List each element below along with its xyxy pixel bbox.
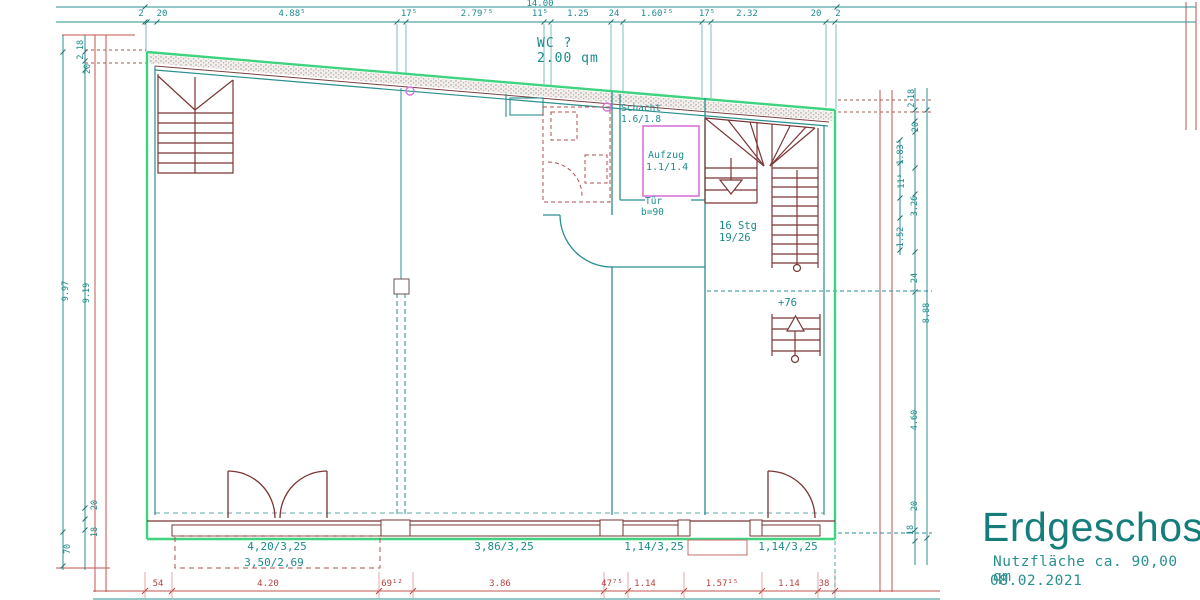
stair-down-arrow-icon [720,180,742,194]
room-label-114a: 1,14/3,25 [624,541,684,552]
dim-top-5: 11⁵ [532,10,548,19]
wc-door-arc [560,215,612,267]
plan-date: 08.02.2021 [990,574,1082,589]
aufzug-size-label: 1.1/1.4 [646,163,688,173]
dim-right-1: 2 [908,102,917,107]
dim-top-7: 24 [609,10,620,19]
dim-bottom-3: 3.86 [489,580,511,589]
dim-bottom-0: 54 [153,580,164,589]
doors [228,471,815,518]
schacht-size-label: 1.6/1.8 [621,115,661,125]
dim-right-3: 1.83⁵ [897,139,906,165]
dim-top-1: 20 [157,10,168,19]
column-marker [394,279,409,294]
dim-left-0: 18 [77,40,86,50]
wc-area-label: 2.00 qm [537,52,599,65]
dashed-reference-lines [85,50,932,598]
dim-right-11: 18 [907,525,916,535]
stair-rise-label: 19/26 [719,233,751,244]
dim-bottom-5: 1.14 [634,580,656,589]
dim-bottom-4: 47⁷⁵ [601,580,623,589]
room-label-114b: 1,14/3,25 [758,541,818,552]
side-dim-ticks [61,50,930,569]
room-label-420: 4,20/3,25 [247,541,307,552]
dim-right-8: 8.88 [923,303,932,323]
dim-left-6: 18 [91,527,100,537]
dim-left-1: 2 [77,54,86,59]
dim-top-11: 20 [811,10,822,19]
floorplan-screenshot: 14.00 2 20 4.88⁵ 17⁵ 2.79⁷⁵ 11⁵ 1.25 24 … [0,0,1200,600]
dim-bottom-8: 38 [819,580,830,589]
dim-right-9: 4.60 [911,410,920,430]
dim-left-7: 70 [64,544,73,554]
tuer-width-label: b=90 [641,208,664,218]
dim-top-9: 17⁵ [699,10,715,19]
dim-right-5: 3.26 [911,196,920,216]
empty-label-box [688,540,747,555]
dim-top-12: 2 [835,10,840,19]
dim-top-0: 2 [138,10,143,19]
dim-right-0: 18 [908,89,917,99]
dim-right-2: 20 [912,122,921,132]
dim-bottom-1: 4.20 [257,580,279,589]
top-wall-hatch [149,54,833,121]
dim-bottom-2: 69¹² [381,580,403,589]
dim-top-6: 1.25 [567,10,589,19]
tuer-label: Tür [645,197,662,207]
dim-top-overall: 14.00 [526,0,553,9]
wc-fixtures-dashed [543,107,610,202]
elevator-cab-outline [643,126,699,196]
wc-label: WC ? [537,37,572,50]
stair-count-label: 16 Stg [719,221,757,232]
bottom-wall-windows [147,520,835,536]
aufzug-label: Aufzug [648,151,684,161]
dim-top-4: 2.79⁷⁵ [461,10,494,19]
dim-left-5: 20 [91,500,100,510]
dim-right-7: 24 [911,273,920,283]
dim-right-4: 11⁵ [898,173,907,188]
page-title: Erdgeschoss [982,507,1200,548]
dim-left-2: 20 [84,64,93,74]
stair-top-left [158,74,233,173]
dim-bottom-7: 1.14 [778,580,800,589]
room-label-386: 3,86/3,25 [474,541,534,552]
dim-bottom-6: 1.57¹⁵ [706,580,739,589]
dim-left-3: 9.97 [62,281,71,301]
dim-top-8: 1.60²⁵ [641,10,674,19]
level-mark-label: +76 [778,298,797,309]
room-label-350: 3,50/2,69 [244,557,304,568]
schacht-label: Schacht [621,104,661,114]
dim-right-6: 1.52 [897,227,906,247]
dim-top-2: 4.88⁵ [278,10,305,19]
dim-top-3: 17⁵ [401,10,417,19]
dim-right-10: 20 [911,501,920,511]
dim-left-4: 9.19 [83,283,92,303]
dim-top-10: 2.32 [736,10,758,19]
